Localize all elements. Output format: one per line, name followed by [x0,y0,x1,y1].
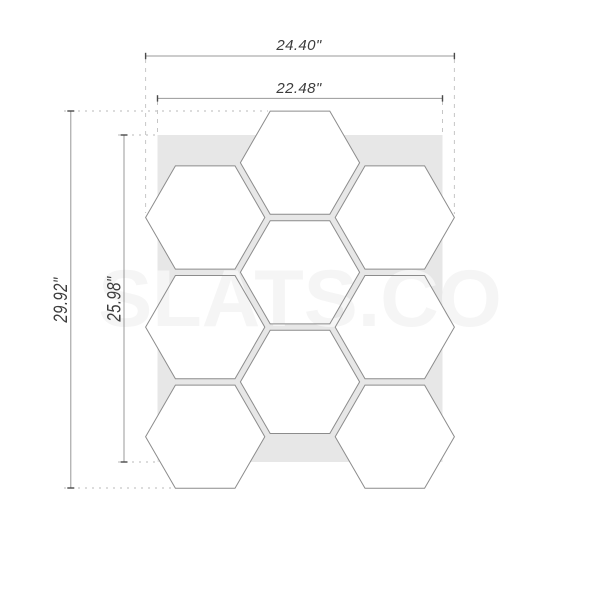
svg-text:24.40": 24.40" [275,37,322,54]
svg-text:25.98": 25.98" [103,276,125,322]
svg-text:22.48": 22.48" [275,80,322,97]
svg-text:29.92": 29.92" [49,277,71,323]
